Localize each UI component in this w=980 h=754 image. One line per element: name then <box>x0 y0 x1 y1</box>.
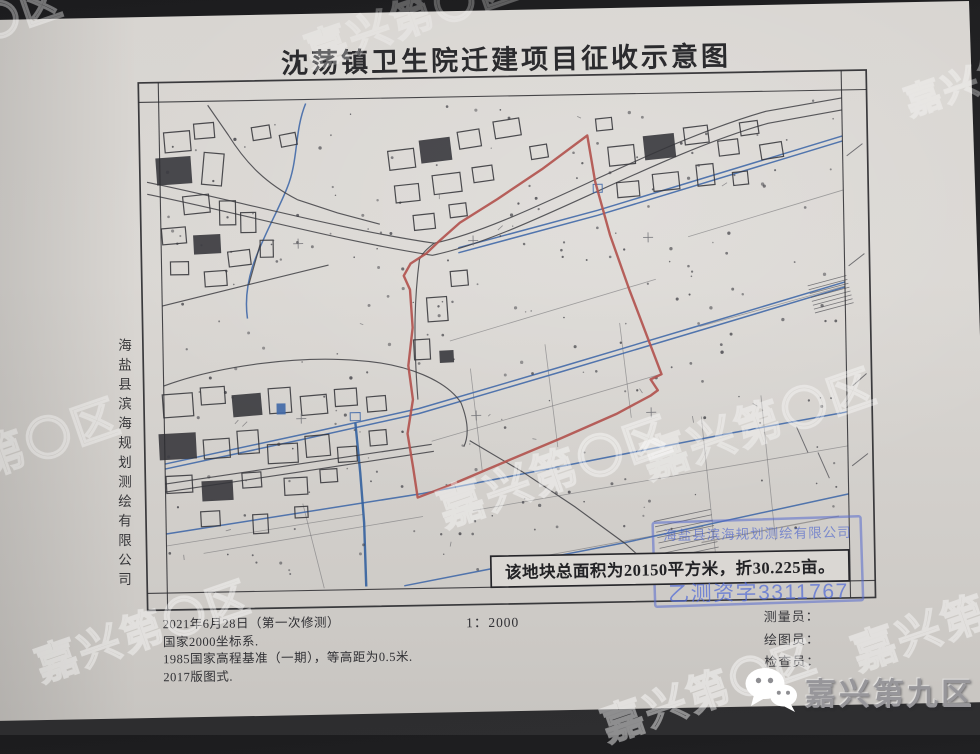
map-notes: 2021年6月28日（第一次修测） 国家2000坐标系. 1985国家高程基准（… <box>163 614 413 687</box>
note-elevation-datum: 1985国家高程基准（一期），等高距为0.5米. <box>163 649 413 669</box>
draftsman-label: 绘图员： <box>764 628 820 651</box>
surveyor-label: 测量员： <box>764 606 820 629</box>
surveying-company-label: 海盐县滨海规划测绘有限公司 <box>113 338 133 592</box>
note-symbology-version: 2017版图式. <box>163 666 413 686</box>
branding-name: 嘉兴第九区 <box>805 669 975 714</box>
wechat-icon <box>744 666 798 717</box>
map-scale: 1：2000 <box>466 611 519 632</box>
branding: 嘉兴第九区 <box>744 666 975 717</box>
personnel-labels: 测量员： 绘图员： 检查员： <box>764 606 821 674</box>
